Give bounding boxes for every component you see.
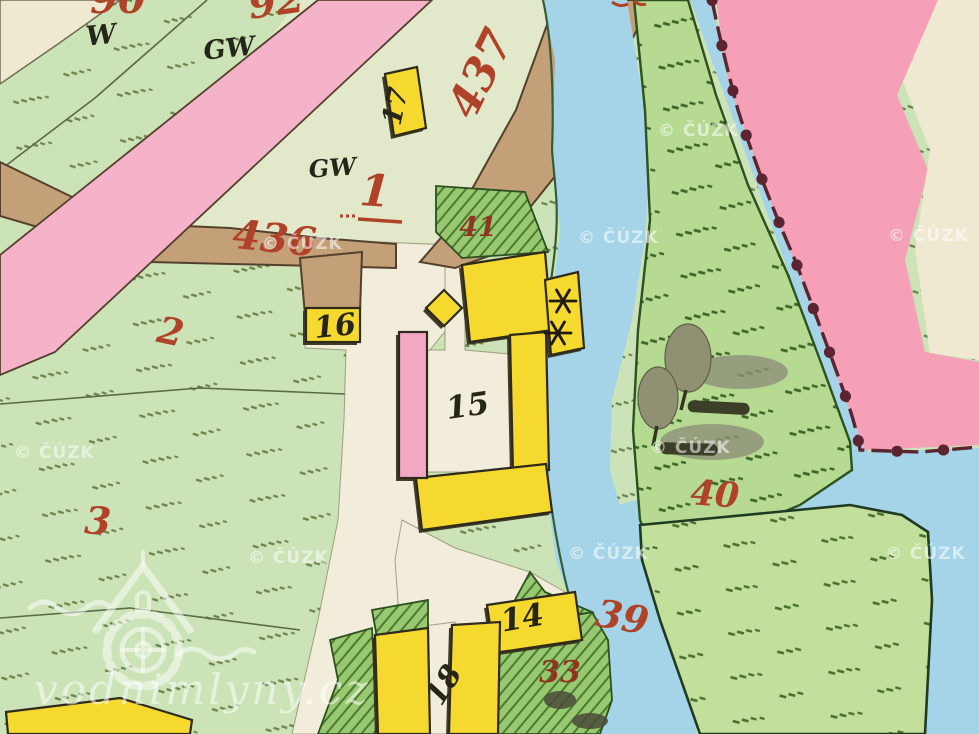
watermark-cuzk: © ČÚZK [248,546,329,568]
parcel-label-41: 41 [459,212,497,243]
parcel-label-40: 40 [689,472,740,516]
parcel-label-33: 33 [539,655,581,690]
parcel-label-1: 1 [358,165,392,218]
parcel-label-90-partial: 90 [90,0,146,23]
cadastral-map-canvas[interactable]: W GW GW 17 16 15 14 18 90 92 437 436 1 2… [0,0,979,734]
watermark-cuzk: © ČÚZK [658,119,739,141]
label-gw-top: GW [202,31,259,67]
watermark-cuzk: © ČÚZK [568,542,649,564]
label-gw-mid: GW [308,151,359,183]
label-w: W [84,18,120,52]
building-label-16: 16 [312,307,357,346]
building-l-wing-vertical [510,332,549,473]
parcel-label-3: 3 [83,497,113,544]
watermark-cuzk: © ČÚZK [885,542,966,564]
parcel-label-39: 39 [592,590,652,644]
watermark-cuzk: © ČÚZK [888,224,969,246]
watermark-cuzk: © ČÚZK [578,226,659,248]
building-label-15: 15 [444,385,492,427]
watermark-cuzk: © ČÚZK [14,441,95,463]
map-drawing: W GW GW 17 16 15 14 18 90 92 437 436 1 2… [0,0,979,734]
building-label-14: 14 [498,597,547,640]
watermark-cuzk: © ČÚZK [262,232,343,254]
building-pink [399,332,427,478]
watermark-site-text: vodnimlyny.cz [34,665,371,714]
building-mill-main [462,252,552,342]
building-18-left [375,628,430,734]
watermark-cuzk: © ČÚZK [650,436,731,458]
